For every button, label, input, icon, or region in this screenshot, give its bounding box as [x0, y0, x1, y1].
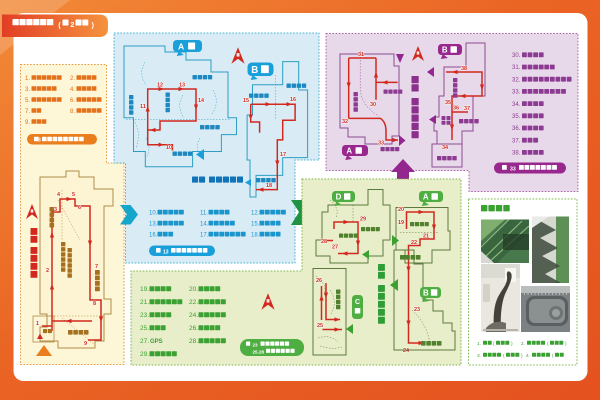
- svg-text:1: 1: [36, 321, 39, 327]
- svg-text:A: A: [178, 41, 184, 51]
- svg-text:13: 13: [179, 83, 185, 89]
- svg-text:5.: 5.: [25, 98, 30, 104]
- svg-text:34.: 34.: [512, 102, 521, 108]
- svg-text:18: 18: [266, 183, 272, 189]
- svg-text:35.: 35.: [512, 114, 521, 120]
- svg-text:14: 14: [198, 98, 205, 104]
- svg-text:31.: 31.: [512, 65, 521, 71]
- svg-text:23: 23: [414, 307, 420, 313]
- svg-text:16.: 16.: [149, 233, 158, 239]
- svg-text:32.: 32.: [512, 77, 521, 83]
- svg-text:1.: 1.: [25, 76, 30, 82]
- svg-text:21.: 21.: [140, 299, 149, 306]
- svg-text:GPS: GPS: [150, 339, 163, 345]
- svg-text:17.: 17.: [200, 233, 209, 239]
- svg-text:3.: 3.: [477, 353, 481, 359]
- svg-text:15.: 15.: [251, 222, 260, 228]
- svg-text:3: 3: [54, 207, 57, 213]
- svg-text:33: 33: [510, 167, 516, 173]
- svg-text:32: 32: [342, 119, 348, 125]
- svg-text:26: 26: [316, 278, 322, 284]
- svg-text:33: 33: [378, 141, 384, 147]
- svg-text:14.: 14.: [200, 222, 209, 228]
- svg-text:11: 11: [140, 104, 146, 110]
- svg-text:17: 17: [280, 152, 286, 158]
- svg-text:16: 16: [290, 97, 296, 103]
- svg-text:B: B: [423, 289, 429, 298]
- svg-text:12: 12: [157, 83, 163, 89]
- svg-text:C: C: [355, 299, 360, 306]
- svg-text:A: A: [423, 193, 429, 202]
- svg-text:5: 5: [72, 192, 75, 198]
- svg-text:6.: 6.: [70, 98, 75, 104]
- svg-text:20.: 20.: [189, 286, 198, 293]
- svg-text:2.: 2.: [521, 341, 525, 347]
- svg-text:2: 2: [71, 22, 75, 29]
- svg-text:33.: 33.: [512, 90, 521, 96]
- svg-text:B: B: [442, 46, 448, 55]
- svg-text:21: 21: [423, 234, 429, 240]
- svg-text:26.: 26.: [189, 325, 198, 332]
- svg-text:20: 20: [398, 207, 404, 213]
- svg-text:2.: 2.: [70, 76, 75, 82]
- svg-text:4.: 4.: [526, 353, 530, 359]
- svg-text:38: 38: [461, 66, 467, 72]
- svg-text:12.: 12.: [251, 211, 260, 217]
- svg-text:3.: 3.: [25, 87, 30, 93]
- svg-text:8: 8: [93, 301, 96, 307]
- svg-text:15: 15: [243, 98, 249, 104]
- svg-text:9: 9: [84, 341, 87, 347]
- svg-text:8.: 8.: [70, 109, 75, 115]
- svg-text:36.: 36.: [512, 126, 521, 132]
- svg-text:22: 22: [411, 240, 417, 246]
- svg-text:36: 36: [453, 106, 459, 112]
- svg-text:4.: 4.: [70, 87, 75, 93]
- svg-text:29: 29: [360, 217, 366, 223]
- svg-text:28.: 28.: [189, 338, 198, 345]
- svg-text:37.: 37.: [512, 138, 521, 144]
- svg-text:27: 27: [332, 245, 338, 251]
- svg-text:D: D: [336, 193, 342, 202]
- svg-text:38.: 38.: [512, 151, 521, 157]
- svg-text:31: 31: [358, 52, 364, 58]
- svg-text:B: B: [251, 65, 258, 76]
- svg-text:13: 13: [163, 250, 169, 256]
- svg-text:27.: 27.: [140, 338, 149, 345]
- svg-text:7: 7: [95, 264, 98, 270]
- svg-text:1.: 1.: [477, 341, 481, 347]
- svg-text:25.: 25.: [140, 325, 149, 332]
- svg-text:28: 28: [321, 239, 327, 245]
- svg-text:34: 34: [442, 145, 449, 151]
- svg-text:23.: 23.: [140, 312, 149, 319]
- svg-text:22.: 22.: [189, 299, 198, 306]
- svg-text:11.: 11.: [200, 211, 208, 217]
- svg-text:37: 37: [464, 106, 470, 112]
- svg-text:30.: 30.: [512, 53, 521, 59]
- svg-text:2: 2: [46, 268, 49, 274]
- svg-text:10.: 10.: [149, 211, 158, 217]
- svg-text:7.: 7.: [25, 109, 30, 115]
- svg-text:18.: 18.: [251, 233, 260, 239]
- svg-text:35: 35: [445, 100, 451, 106]
- svg-text:24: 24: [403, 348, 410, 354]
- svg-text:9.: 9.: [25, 120, 30, 126]
- svg-text:25.28: 25.28: [253, 350, 265, 355]
- svg-text:25: 25: [317, 323, 323, 329]
- svg-text:13.: 13.: [149, 222, 158, 228]
- svg-text:19.: 19.: [140, 286, 149, 293]
- svg-text:10: 10: [166, 145, 172, 151]
- svg-text:A: A: [346, 147, 352, 156]
- svg-text:24.: 24.: [189, 312, 198, 319]
- svg-text:30: 30: [370, 102, 376, 108]
- svg-text:6: 6: [78, 205, 81, 211]
- svg-text:23: 23: [253, 343, 259, 348]
- svg-text:19: 19: [398, 220, 404, 226]
- svg-text:29.: 29.: [140, 351, 149, 358]
